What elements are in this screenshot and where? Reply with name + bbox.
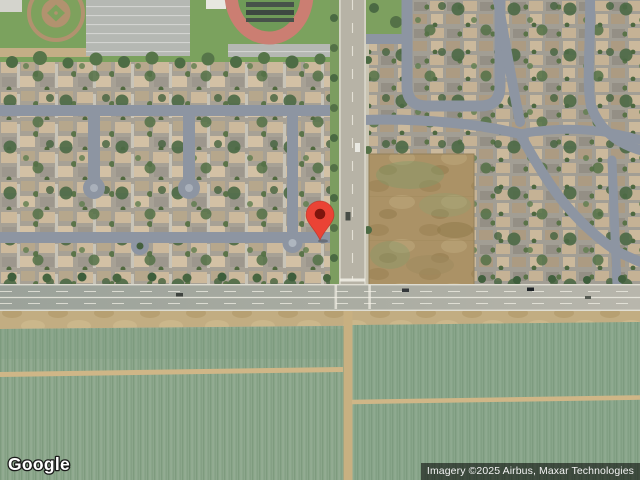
farm-track-vertical xyxy=(344,311,353,480)
car xyxy=(527,288,534,292)
car xyxy=(402,289,409,293)
crosswalk xyxy=(335,285,338,309)
running-track xyxy=(231,0,307,38)
main-road-vertical xyxy=(339,0,366,311)
farm-fields xyxy=(0,311,640,480)
imagery-attribution-text: Imagery ©2025 Airbus, Maxar Technologies xyxy=(427,465,634,477)
car xyxy=(176,293,183,297)
residential-east xyxy=(363,0,640,311)
satellite-map-viewport[interactable]: Google Imagery ©2025 Airbus, Maxar Techn… xyxy=(0,0,640,480)
car xyxy=(355,143,360,152)
imagery-attribution: Imagery ©2025 Airbus, Maxar Technologies xyxy=(421,463,640,480)
pin-inner-dot xyxy=(315,209,326,220)
road-verge xyxy=(330,0,339,284)
google-logo-graphic: Google xyxy=(6,451,92,477)
school-building xyxy=(206,0,226,9)
main-road-horizontal xyxy=(0,284,640,311)
crosswalk xyxy=(340,279,365,282)
google-logo[interactable]: Google xyxy=(6,451,92,477)
vacant-lot xyxy=(369,154,474,286)
baseball-field xyxy=(29,0,83,40)
car xyxy=(346,212,351,221)
map-canvas xyxy=(0,0,640,480)
sports-complex xyxy=(0,0,339,69)
car xyxy=(585,296,591,299)
crosswalk xyxy=(368,285,371,309)
google-logo-text: Google xyxy=(8,454,70,474)
